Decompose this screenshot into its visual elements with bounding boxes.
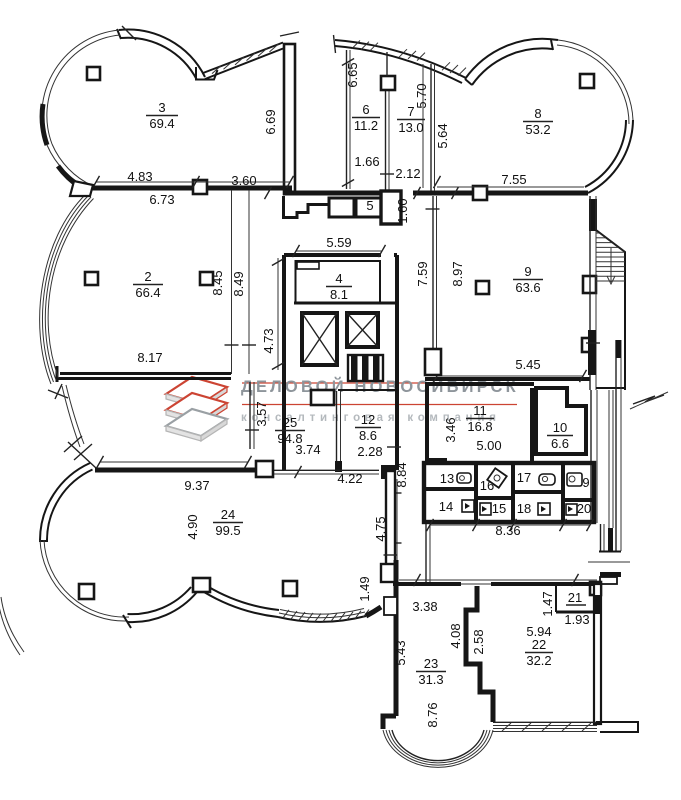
svg-text:12: 12	[361, 412, 375, 427]
svg-text:1.49: 1.49	[357, 576, 372, 601]
svg-text:3.60: 3.60	[231, 173, 256, 188]
svg-text:18: 18	[517, 501, 531, 516]
svg-text:4.75: 4.75	[373, 516, 388, 541]
svg-text:63.6: 63.6	[515, 280, 540, 295]
svg-text:3: 3	[158, 100, 165, 115]
svg-text:17: 17	[517, 470, 531, 485]
svg-text:8: 8	[534, 106, 541, 121]
svg-text:23: 23	[424, 656, 438, 671]
svg-text:13.0: 13.0	[398, 120, 423, 135]
svg-text:1.93: 1.93	[564, 612, 589, 627]
svg-text:8.1: 8.1	[330, 287, 348, 302]
svg-text:4.73: 4.73	[261, 328, 276, 353]
svg-text:8.17: 8.17	[137, 350, 162, 365]
svg-text:69.4: 69.4	[149, 116, 174, 131]
svg-text:2.28: 2.28	[357, 444, 382, 459]
svg-text:7.59: 7.59	[415, 261, 430, 286]
svg-text:5.64: 5.64	[435, 123, 450, 148]
svg-text:20: 20	[577, 501, 591, 516]
svg-text:3.74: 3.74	[295, 442, 320, 457]
svg-text:4.08: 4.08	[448, 623, 463, 648]
svg-text:6.65: 6.65	[345, 62, 360, 87]
svg-text:8.97: 8.97	[450, 261, 465, 286]
svg-text:4: 4	[335, 271, 342, 286]
svg-text:6: 6	[362, 102, 369, 117]
svg-text:53.2: 53.2	[525, 122, 550, 137]
svg-text:8.84: 8.84	[394, 462, 409, 487]
svg-text:1.66: 1.66	[354, 154, 379, 169]
svg-text:4.22: 4.22	[337, 471, 362, 486]
svg-text:99.5: 99.5	[215, 523, 240, 538]
svg-text:4.90: 4.90	[185, 514, 200, 539]
svg-text:31.3: 31.3	[418, 672, 443, 687]
svg-text:6.6: 6.6	[551, 436, 569, 451]
svg-text:5.70: 5.70	[414, 83, 429, 108]
svg-text:8.36: 8.36	[495, 523, 520, 538]
svg-text:5.59: 5.59	[326, 235, 351, 250]
svg-text:6.73: 6.73	[149, 192, 174, 207]
svg-text:11: 11	[473, 403, 487, 418]
svg-text:10: 10	[553, 420, 567, 435]
svg-text:8.49: 8.49	[231, 271, 246, 296]
svg-text:11.2: 11.2	[354, 118, 378, 133]
svg-text:13: 13	[440, 471, 454, 486]
svg-text:7.55: 7.55	[501, 172, 526, 187]
svg-text:8.6: 8.6	[359, 428, 377, 443]
svg-text:4.83: 4.83	[127, 169, 152, 184]
svg-text:2.12: 2.12	[395, 166, 420, 181]
svg-text:8.76: 8.76	[425, 702, 440, 727]
svg-text:2.58: 2.58	[471, 629, 486, 654]
svg-text:5.43: 5.43	[393, 640, 408, 665]
svg-text:2: 2	[144, 269, 151, 284]
svg-text:25: 25	[283, 415, 297, 430]
svg-text:1.60: 1.60	[395, 198, 410, 223]
svg-text:14: 14	[439, 499, 453, 514]
svg-text:24: 24	[221, 507, 235, 522]
svg-text:9: 9	[582, 475, 589, 490]
svg-text:9: 9	[524, 264, 531, 279]
svg-text:16.8: 16.8	[467, 419, 492, 434]
svg-text:66.4: 66.4	[135, 285, 160, 300]
svg-text:9.37: 9.37	[184, 478, 209, 493]
svg-text:3.38: 3.38	[412, 599, 437, 614]
svg-text:5: 5	[366, 198, 373, 213]
svg-text:21: 21	[568, 590, 582, 605]
svg-text:3.46: 3.46	[443, 417, 458, 442]
svg-text:1.47: 1.47	[540, 591, 555, 616]
svg-text:5.00: 5.00	[476, 438, 501, 453]
svg-text:22: 22	[532, 637, 546, 652]
svg-text:3.57: 3.57	[254, 401, 269, 426]
svg-text:15: 15	[492, 501, 506, 516]
svg-text:6.69: 6.69	[263, 109, 278, 134]
svg-text:32.2: 32.2	[526, 653, 551, 668]
svg-text:5.45: 5.45	[515, 357, 540, 372]
